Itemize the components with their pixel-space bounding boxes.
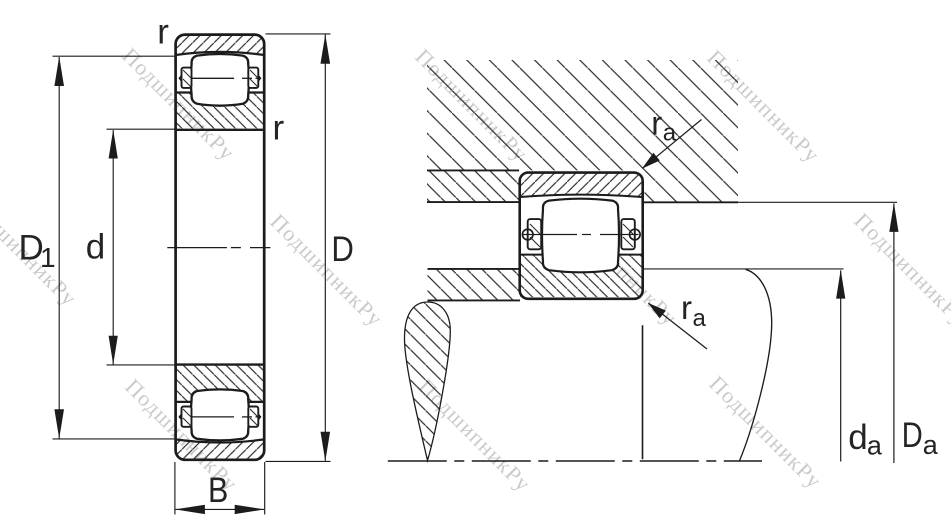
svg-text:1: 1	[40, 242, 56, 273]
svg-text:d: d	[848, 418, 867, 457]
svg-text:D: D	[902, 415, 923, 454]
svg-text:D: D	[331, 230, 353, 269]
svg-text:a: a	[663, 120, 677, 147]
svg-text:r: r	[651, 105, 662, 142]
svg-text:a: a	[923, 430, 939, 460]
svg-text:r: r	[273, 109, 285, 148]
svg-text:a: a	[867, 431, 883, 461]
svg-text:r: r	[157, 12, 169, 51]
svg-text:B: B	[208, 470, 228, 509]
svg-text:r: r	[681, 289, 692, 326]
svg-text:d: d	[86, 228, 105, 267]
svg-text:a: a	[693, 305, 707, 332]
